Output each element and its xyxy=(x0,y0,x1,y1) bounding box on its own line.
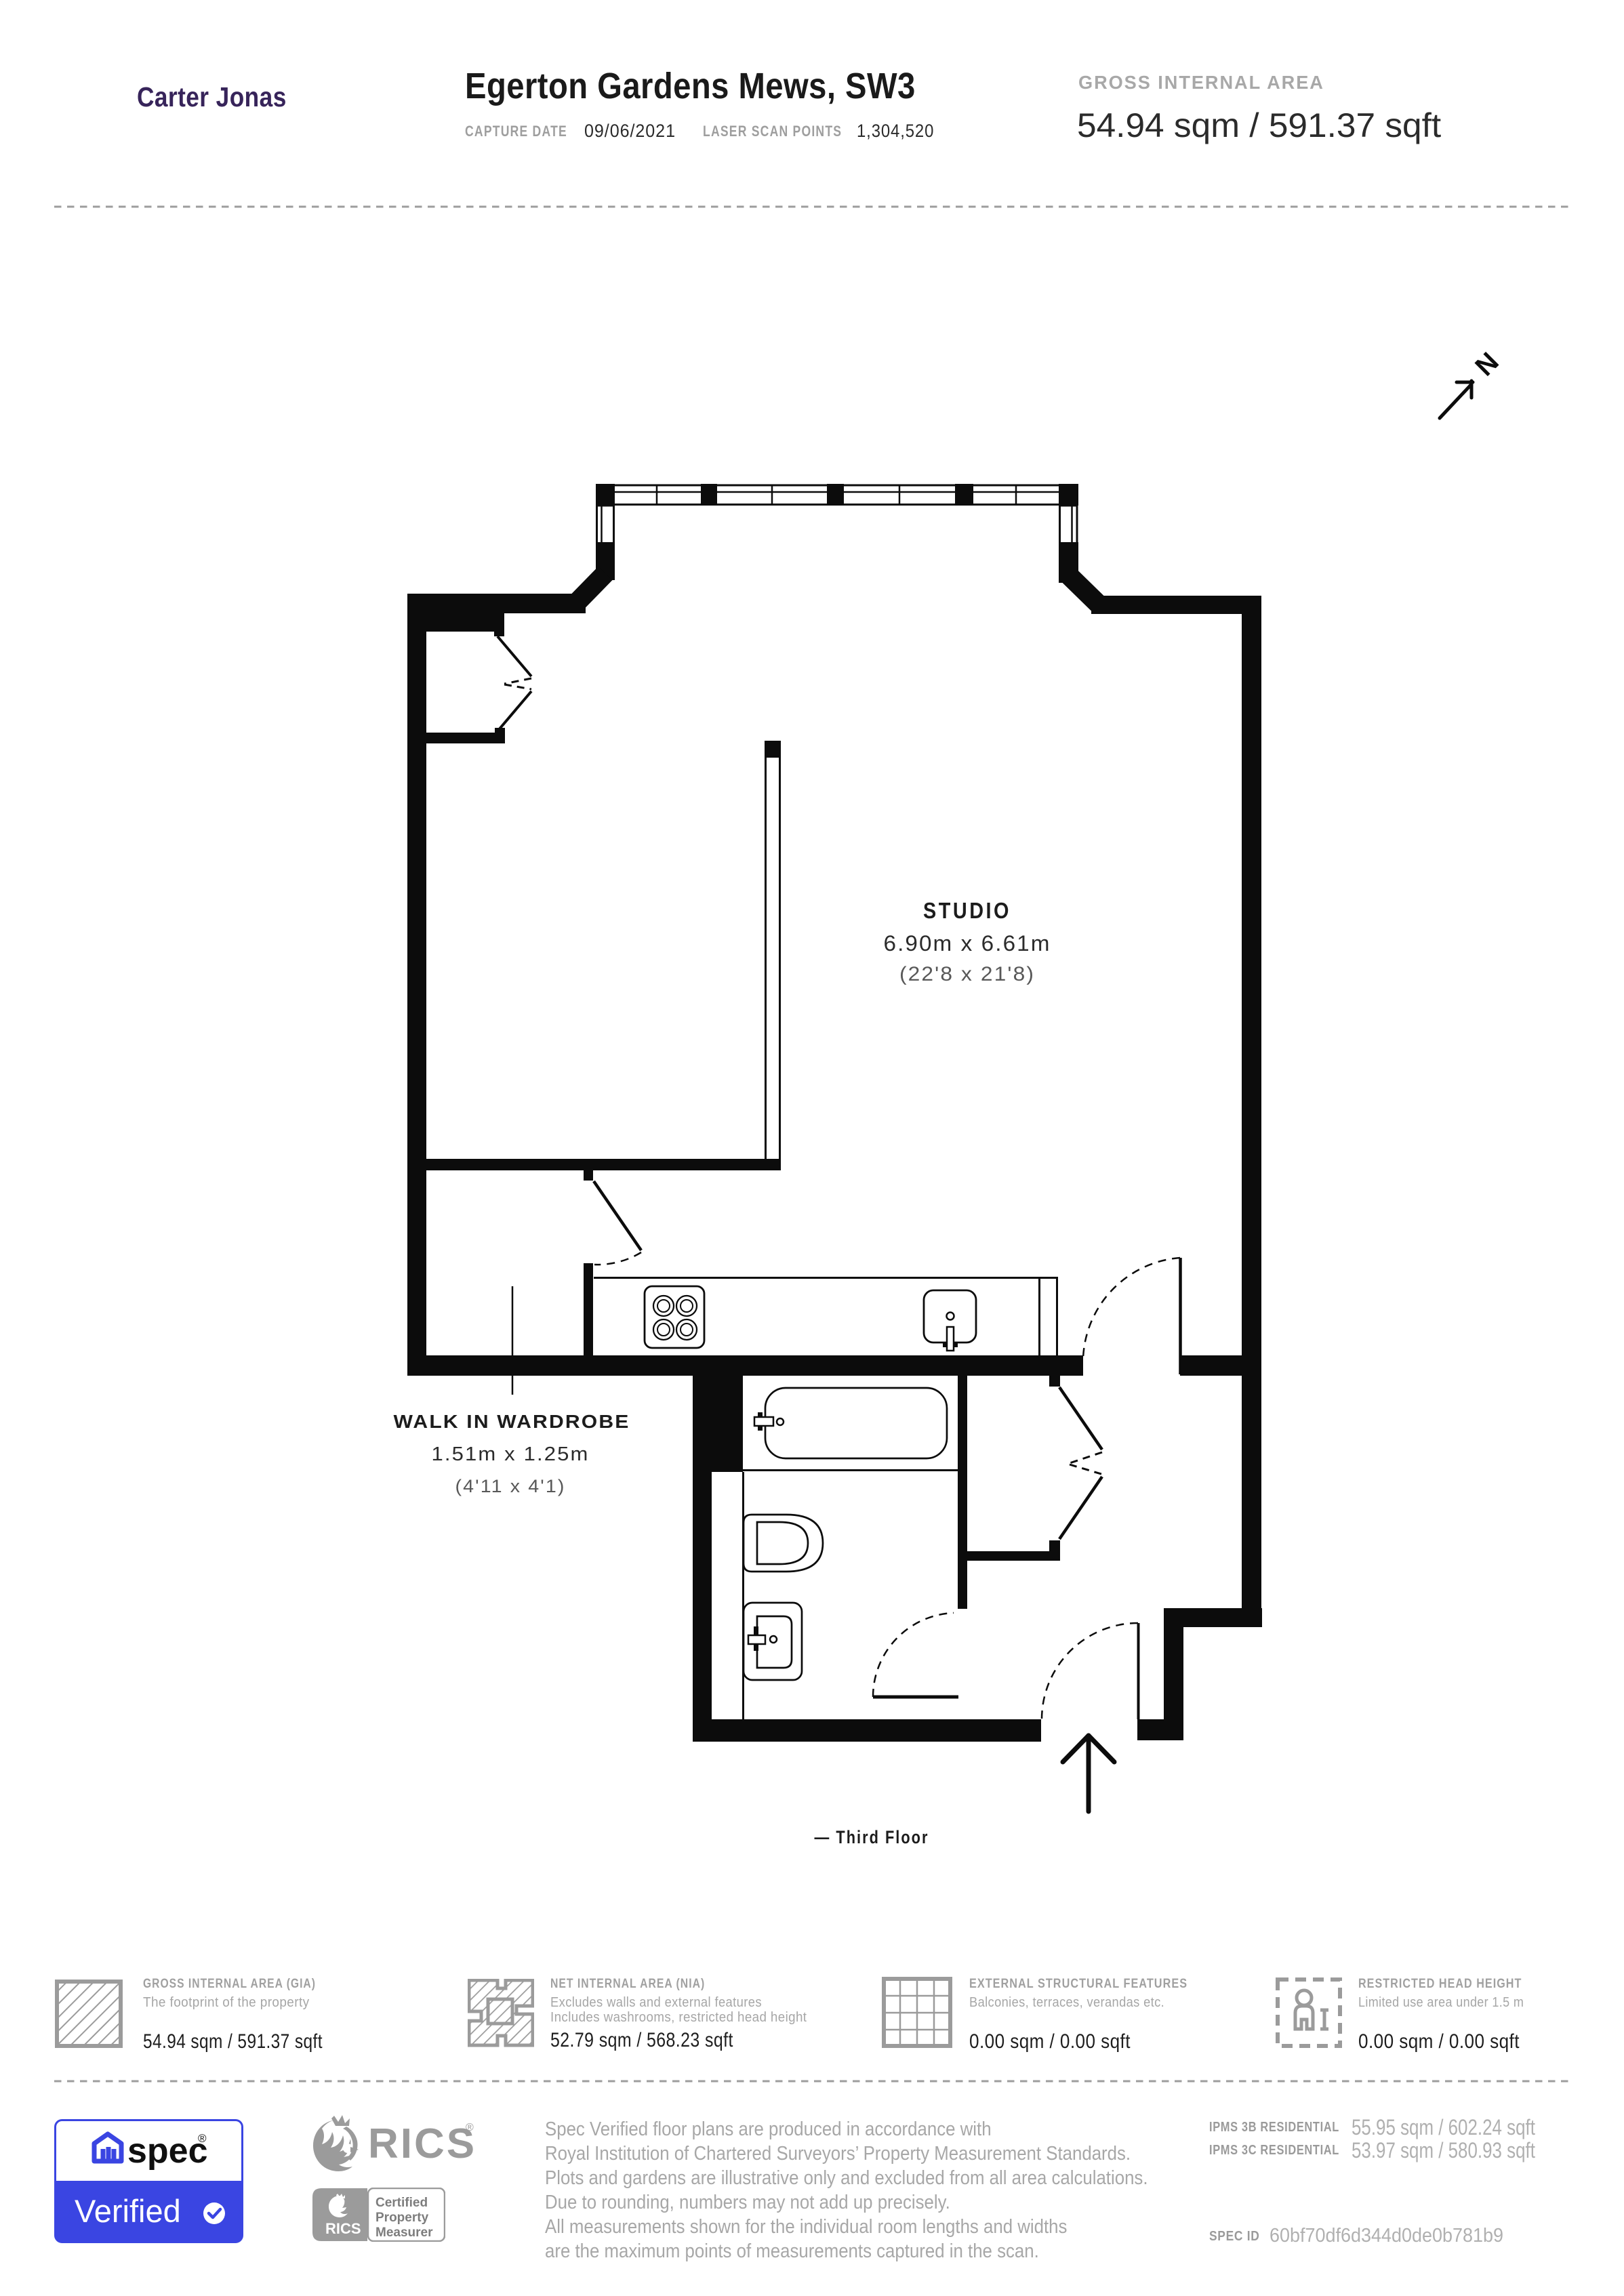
svg-text:Certified: Certified xyxy=(375,2196,428,2210)
svg-text:6.90m x 6.61m: 6.90m x 6.61m xyxy=(884,931,1051,956)
svg-text:®: ® xyxy=(198,2132,207,2145)
svg-text:®: ® xyxy=(466,2122,474,2133)
svg-text:Verified: Verified xyxy=(75,2193,181,2229)
svg-text:RICS: RICS xyxy=(368,2120,474,2167)
svg-text:N: N xyxy=(1469,347,1505,382)
svg-text:WALK IN WARDROBE: WALK IN WARDROBE xyxy=(394,1411,630,1432)
svg-text:STUDIO: STUDIO xyxy=(923,898,1011,923)
svg-text:— Third Floor: — Third Floor xyxy=(815,1827,929,1847)
svg-text:Property: Property xyxy=(375,2211,429,2225)
svg-text:RICS: RICS xyxy=(325,2220,361,2237)
svg-text:1.51m x 1.25m: 1.51m x 1.25m xyxy=(432,1443,590,1465)
svg-text:Measurer: Measurer xyxy=(375,2226,433,2240)
svg-text:(22'8 x 21'8): (22'8 x 21'8) xyxy=(899,963,1035,985)
svg-text:spec: spec xyxy=(127,2131,208,2171)
svg-text:(4'11 x 4'1): (4'11 x 4'1) xyxy=(455,1476,566,1496)
